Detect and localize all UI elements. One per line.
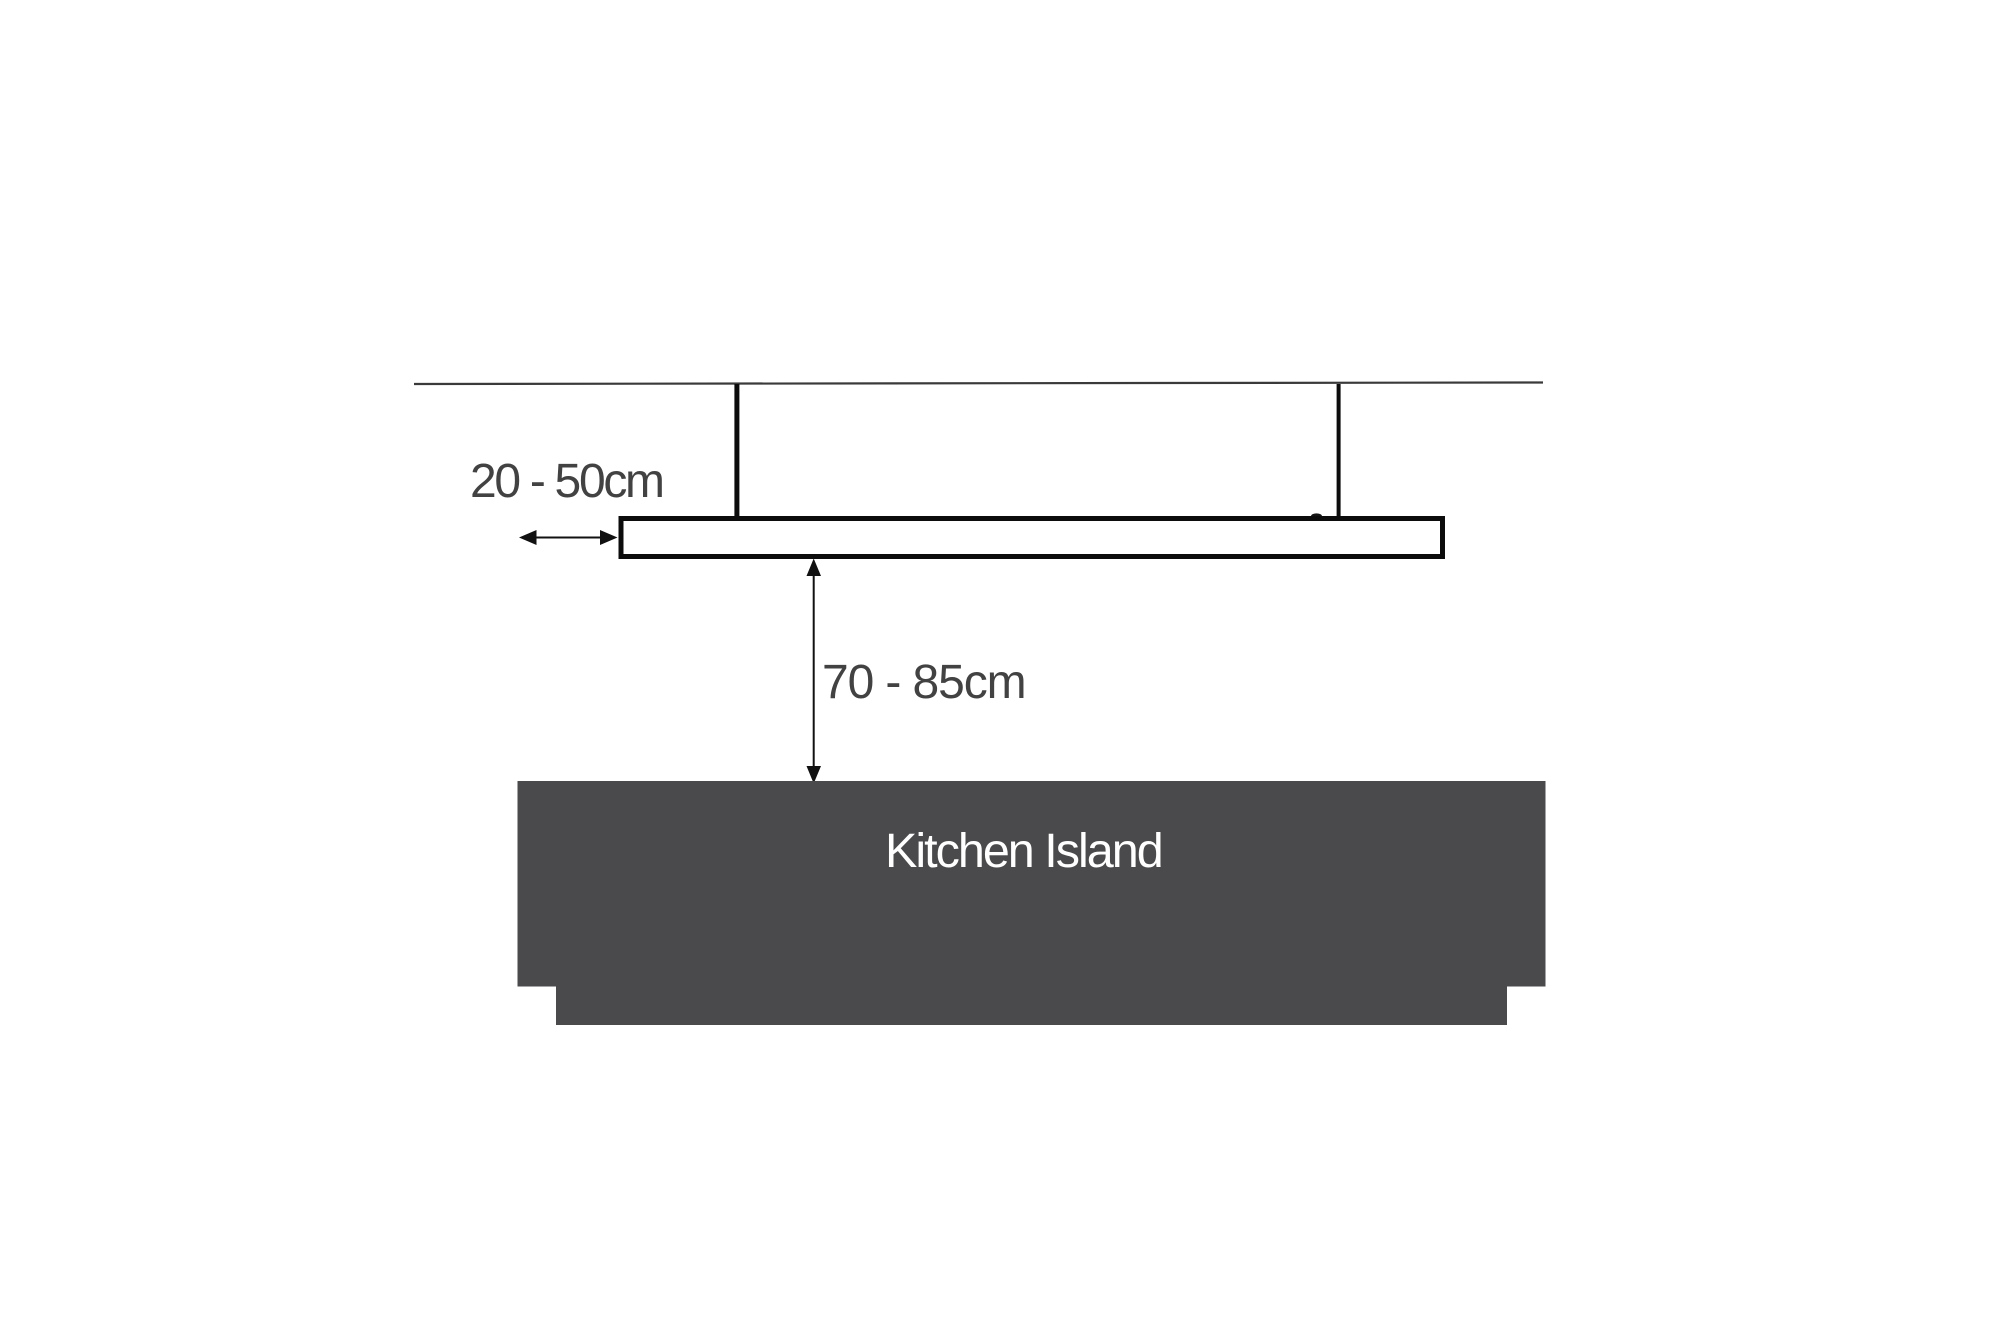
svg-text:70 - 85cm: 70 - 85cm [822, 656, 1026, 709]
svg-text:Kitchen Island: Kitchen Island [885, 824, 1162, 878]
svg-text:20 - 50cm: 20 - 50cm [470, 455, 663, 508]
